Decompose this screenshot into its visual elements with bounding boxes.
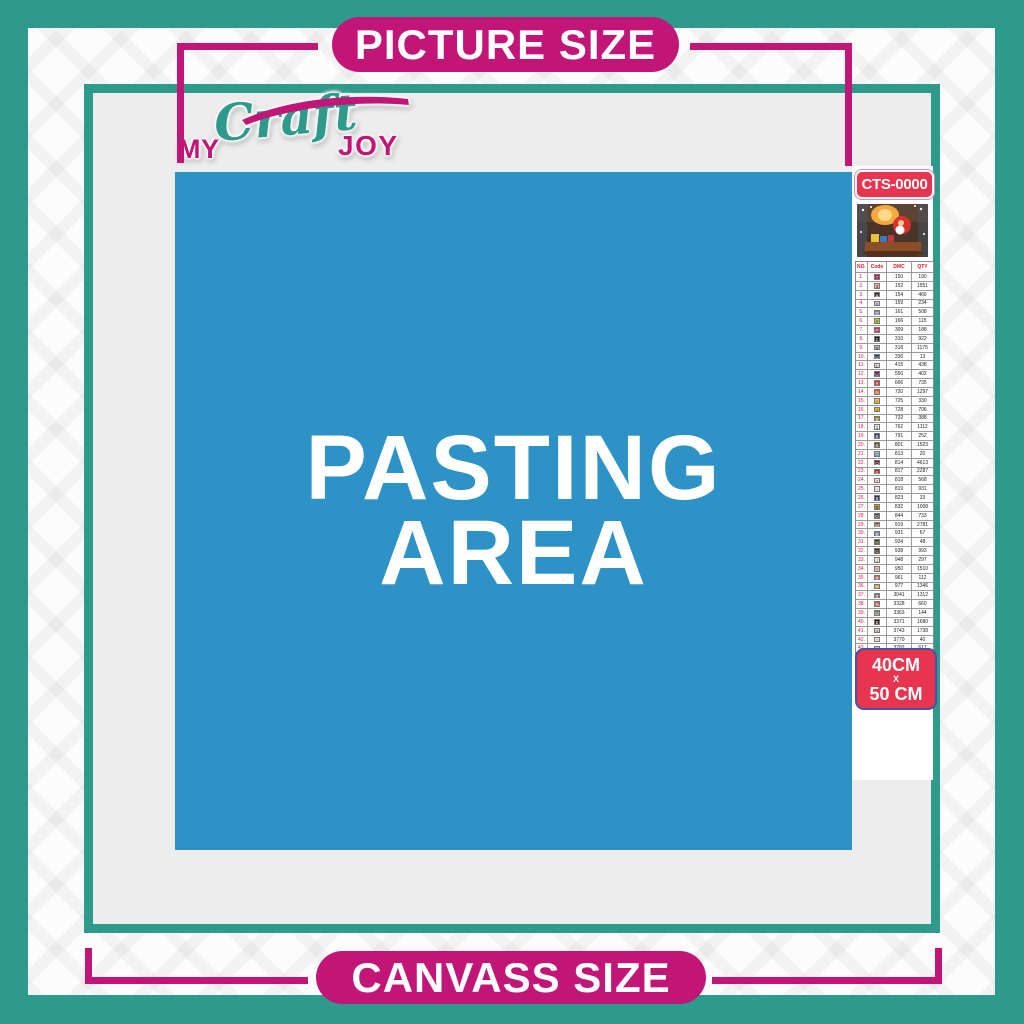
symbol-swatch: B	[874, 495, 880, 501]
bracket-bottom-right-line	[712, 977, 942, 984]
symbol-swatch: P	[874, 327, 880, 333]
chart-row: 23.E8172287	[856, 467, 933, 476]
chart-row: 42.^377040	[856, 635, 933, 644]
sku-label: CTS-0000	[862, 176, 928, 193]
bracket-bottom-left-line	[85, 977, 308, 984]
symbol-swatch: T	[874, 274, 880, 280]
size-line1: 40CM	[872, 656, 920, 674]
chart-row: 39.U3363144	[856, 608, 933, 617]
logo-word-joy: JOY	[338, 130, 399, 162]
symbol-swatch: N	[874, 389, 880, 395]
symbol-swatch: #	[874, 380, 880, 386]
symbol-swatch: O	[874, 451, 880, 457]
chart-row: 21.O81320	[856, 449, 933, 458]
chart-row: 22.O8144613	[856, 458, 933, 467]
symbol-swatch: L	[874, 363, 880, 369]
chart-row: 14.N7201297	[856, 387, 933, 396]
chart-row: 3.a154466	[856, 290, 933, 299]
color-chart-table: NO. Code DMC QTY 1.T1501902.315215513.a1…	[855, 261, 934, 698]
symbol-swatch: +	[874, 486, 880, 492]
chart-row: 15.A725330	[856, 396, 933, 405]
product-image: PASTING AREA PICTURE SIZE CANVASS SIZE M…	[0, 0, 1024, 1024]
symbol-swatch: 3	[874, 283, 880, 289]
symbol-swatch: h	[874, 318, 880, 324]
symbol-swatch: O	[874, 460, 880, 466]
chart-row: 1.T150190	[856, 272, 933, 281]
symbol-swatch: ^	[874, 637, 880, 643]
symbol-swatch: S	[874, 531, 880, 537]
symbol-swatch: B	[874, 433, 880, 439]
symbol-swatch: S	[874, 416, 880, 422]
symbol-swatch: *	[874, 566, 880, 572]
symbol-swatch: U	[874, 610, 880, 616]
symbol-swatch: 2	[874, 593, 880, 599]
symbol-swatch: U	[874, 371, 880, 377]
bracket-top-right-drop	[845, 43, 852, 166]
chart-row: 18.17621112	[856, 422, 933, 431]
chart-row: 7.P309188	[856, 325, 933, 334]
picture-size-banner: PICTURE SIZE	[332, 17, 679, 72]
header-no: NO.	[856, 262, 868, 272]
symbol-swatch: G	[874, 548, 880, 554]
chart-row: 41.Y37431738	[856, 626, 933, 635]
bracket-top-right-line	[690, 43, 852, 50]
symbol-swatch: X	[874, 345, 880, 351]
chart-row: 24.7818568	[856, 475, 933, 484]
chart-row: 13.#666735	[856, 378, 933, 387]
symbol-swatch: T	[874, 584, 880, 590]
bracket-bottom-right-rise	[935, 948, 942, 984]
chart-row: 36.T9771346	[856, 582, 933, 591]
symbol-swatch: X	[874, 301, 880, 307]
chart-row: 40.B33711680	[856, 617, 933, 626]
chart-row: 33.J948297	[856, 555, 933, 564]
chart-row: 35.#961112	[856, 573, 933, 582]
pasting-area: PASTING AREA	[175, 172, 852, 850]
chart-row: 4.X159234	[856, 299, 933, 308]
symbol-swatch: H	[874, 539, 880, 545]
symbol-swatch: B	[874, 504, 880, 510]
chart-row: 11.L415438	[856, 360, 933, 369]
symbol-swatch: J	[874, 557, 880, 563]
chart-row: 16.2728706	[856, 405, 933, 414]
symbol-swatch: #	[874, 575, 880, 581]
header-qty: QTY	[912, 262, 933, 272]
chart-row: 25.+819931	[856, 484, 933, 493]
pasting-area-line2: AREA	[379, 511, 648, 596]
logo-word-my: MY	[178, 134, 220, 165]
chart-row: 8.E310922	[856, 334, 933, 343]
symbol-swatch: A	[874, 398, 880, 404]
symbol-swatch: B	[874, 442, 880, 448]
chart-row: 12.U550402	[856, 369, 933, 378]
symbol-swatch: O	[874, 513, 880, 519]
chart-row: 38.%3328660	[856, 599, 933, 608]
chart-row: 37.230411312	[856, 590, 933, 599]
chart-row: 26.B82333	[856, 493, 933, 502]
size-line2: X	[893, 675, 899, 684]
symbol-swatch: 2	[874, 407, 880, 413]
picture-size-label: PICTURE SIZE	[355, 21, 656, 69]
symbol-swatch: M	[874, 522, 880, 528]
symbol-swatch: B	[874, 619, 880, 625]
symbol-swatch: U	[874, 354, 880, 360]
chart-row: 9.X3181175	[856, 343, 933, 352]
header-dmc: DMC	[887, 262, 912, 272]
bracket-top-left-drop	[177, 43, 184, 163]
chart-row: 10.U33613	[856, 352, 933, 361]
chart-row: 19.B791252	[856, 431, 933, 440]
chart-row: 32.G938993	[856, 546, 933, 555]
symbol-swatch: 7	[874, 478, 880, 484]
chart-row: 28.O844733	[856, 511, 933, 520]
canvass-size-label: CANVASS SIZE	[351, 954, 670, 1002]
symbol-swatch: %	[874, 601, 880, 607]
bracket-top-left-line	[177, 43, 318, 50]
christmas-santa-thumbnail	[857, 204, 928, 257]
chart-row: 31.H93448	[856, 537, 933, 546]
symbol-swatch: Y	[874, 628, 880, 634]
symbol-swatch: a	[874, 292, 880, 298]
symbol-swatch: E	[874, 336, 880, 342]
logo-swoosh-icon	[240, 94, 412, 128]
chart-row: 17.S732388	[856, 414, 933, 423]
pasting-area-line1: PASTING	[305, 426, 721, 511]
symbol-swatch: 1	[874, 424, 880, 430]
chart-row: 29.M9192781	[856, 520, 933, 529]
sku-badge: CTS-0000	[855, 170, 934, 199]
chart-row: 30.S93167	[856, 528, 933, 537]
brand-logo: MY Craft JOY	[168, 94, 428, 178]
color-chart-rows: 1.T1501902.315215513.a1544664.X1592345.G…	[856, 272, 933, 697]
chart-row: 6.h166115	[856, 316, 933, 325]
chart-row: 34.*9501510	[856, 564, 933, 573]
chart-row: 2.31521551	[856, 281, 933, 290]
symbol-swatch: E	[874, 469, 880, 475]
chart-row: 5.G161508	[856, 307, 933, 316]
chart-row: 27.B8321008	[856, 502, 933, 511]
header-code: Code	[868, 262, 887, 272]
size-line3: 50 CM	[869, 685, 922, 703]
canvas-size-badge: 40CM X 50 CM	[855, 648, 937, 710]
bracket-bottom-left-rise	[85, 948, 92, 984]
chart-row: 20.B8011523	[856, 440, 933, 449]
canvass-size-banner: CANVASS SIZE	[316, 951, 706, 1004]
symbol-swatch: G	[874, 310, 880, 316]
color-chart-header: NO. Code DMC QTY	[856, 262, 933, 272]
